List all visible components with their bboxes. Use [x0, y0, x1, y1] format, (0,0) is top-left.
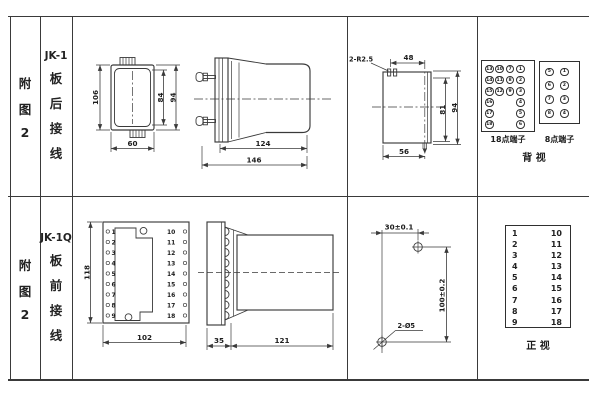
terminal: 3 [516, 87, 525, 96]
figure-char: 附 [19, 73, 32, 92]
terminal: 2 [516, 76, 525, 85]
terminal-no: 2 [112, 239, 116, 246]
dim-case-inner-height: 84 [156, 92, 165, 102]
figure-char: 2 [21, 125, 30, 140]
dim-hole-spacing-h: 30±0.1 [385, 223, 414, 232]
drawing-rear-case-and-side: 106 60 84 94 124 146 [72, 16, 347, 196]
hole-diameter-label: 2-Ø5 [398, 322, 416, 330]
terminal-no: 10 [538, 229, 570, 240]
side-view-front-wiring: 35 121 [198, 222, 340, 350]
terminal-no: 17 [538, 307, 570, 318]
terminal-block-18pt: 13 10 7 1 14 11 8 2 15 12 9 3 16 4 17 5 … [481, 60, 535, 132]
top-hole [412, 241, 451, 254]
drawing-front-panel-and-side: 1 2 3 4 5 6 7 8 9 10 11 12 13 14 15 16 1… [72, 196, 347, 380]
terminal-no: 5 [112, 271, 116, 278]
terminal-no: 7 [506, 296, 538, 307]
dim-plate-depth: 35 [214, 336, 224, 345]
model-label-row1: JK-1 板 后 接 线 [40, 16, 72, 196]
terminal-no: 17 [167, 302, 175, 309]
dim-case-height: 106 [91, 90, 100, 105]
figure-char: 图 [19, 99, 32, 118]
terminal-no: 12 [167, 250, 175, 257]
terminal: 4 [516, 98, 525, 107]
wiring-char: 接 [50, 118, 63, 137]
figure-char: 附 [19, 255, 32, 274]
dim-cutout-inner-height: 81 [438, 105, 447, 115]
model-name: JK-1Q [40, 232, 72, 244]
terminal-no: 2 [506, 240, 538, 251]
terminal-no: 18 [167, 313, 175, 320]
terminal-18pt-label: 18点端子 [479, 134, 537, 145]
terminal-no: 3 [506, 251, 538, 262]
wiring-char: 线 [50, 325, 63, 344]
terminal-no: 13 [167, 260, 175, 267]
dim-case-outer-height: 94 [169, 92, 178, 102]
terminal-no: 18 [538, 318, 570, 329]
terminal-no: 14 [167, 271, 175, 278]
dim-hole-spacing-v: 100±0.2 [437, 279, 446, 313]
terminal-no: 16 [167, 292, 175, 299]
model-name: JK-1 [45, 50, 68, 62]
figure-char: 2 [21, 307, 30, 322]
mount-hole [140, 227, 147, 234]
model-label-row2: JK-1Q 板 前 接 线 [40, 196, 72, 380]
wiring-char: 板 [50, 250, 63, 269]
dim-case-width: 60 [127, 139, 137, 148]
dim-total-length: 146 [246, 156, 261, 165]
terminal: 17 [485, 109, 494, 118]
bottom-connector [130, 130, 145, 138]
panel-left-terminals: 1 2 3 4 5 6 7 8 9 [106, 229, 116, 320]
technical-drawing-page: { "row1": { "figure_no": ["附", "图", "2"]… [0, 0, 600, 400]
terminal-no: 16 [538, 296, 570, 307]
terminal: 10 [495, 65, 504, 74]
front-panel-view: 1 2 3 4 5 6 7 8 9 10 11 12 13 14 15 16 1… [82, 222, 189, 347]
terminal-block-8pt: 5 1 6 2 7 3 8 4 [539, 61, 580, 124]
side-view-rear-wiring: 124 146 [194, 58, 332, 169]
terminal-no: 12 [538, 251, 570, 262]
terminal-no: 4 [506, 262, 538, 273]
dim-cutout-top-width: 48 [403, 53, 413, 62]
terminal-no: 3 [112, 250, 116, 257]
terminal: 15 [485, 87, 494, 96]
terminal-no: 9 [112, 313, 116, 320]
terminal-screw [196, 73, 216, 82]
drawing-drill-pattern: 30±0.1 100±0.2 2-Ø5 [347, 196, 477, 380]
terminal-no: 1 [506, 229, 538, 240]
dim-panel-height: 118 [82, 265, 91, 280]
rear-view-label: 背 视 [499, 149, 569, 164]
figure-label-row2: 附 图 2 [10, 196, 40, 380]
terminal: 1 [516, 65, 525, 74]
terminal: 8 [506, 76, 515, 85]
terminal-no: 9 [506, 318, 538, 329]
terminal: 7 [506, 65, 515, 74]
figure-char: 图 [19, 281, 32, 300]
slot-radius-label: 2-R2.5 [349, 56, 373, 64]
terminal-no: 11 [167, 239, 175, 246]
wiring-char: 线 [50, 143, 63, 162]
terminal: 9 [506, 87, 515, 96]
terminal-no: 15 [538, 284, 570, 295]
terminal-no: 1 [112, 229, 116, 236]
terminal: 6 [545, 81, 554, 90]
terminal: 5 [545, 68, 554, 77]
terminal-8pt-label: 8点端子 [536, 134, 583, 145]
wiring-char: 前 [50, 275, 63, 294]
grid-line [477, 16, 478, 380]
terminal: 7 [545, 95, 554, 104]
panel-right-terminals: 10 11 12 13 14 15 16 17 18 [167, 229, 187, 320]
terminal-bumps [225, 228, 229, 320]
terminal-no: 14 [538, 273, 570, 284]
dim-panel-width: 102 [137, 333, 152, 342]
terminal-no: 7 [112, 292, 116, 299]
terminal-no: 4 [112, 260, 116, 267]
terminal-no: 15 [167, 281, 175, 288]
terminal: 16 [485, 98, 494, 107]
dim-body-length: 124 [255, 139, 270, 148]
terminal: 5 [516, 109, 525, 118]
terminal: 6 [516, 120, 525, 129]
terminal: 4 [560, 109, 569, 118]
terminal-no: 6 [506, 284, 538, 295]
terminal: 1 [560, 68, 569, 77]
terminal: 2 [560, 81, 569, 90]
dim-cutout-outer-height: 94 [450, 103, 459, 113]
terminal: 14 [485, 76, 494, 85]
wiring-char: 板 [50, 68, 63, 87]
wiring-char: 接 [50, 300, 63, 319]
terminal-table-front: 1 10 2 11 3 12 4 13 5 14 6 15 7 16 8 17 … [505, 225, 571, 328]
terminal: 11 [495, 76, 504, 85]
terminal-no: 11 [538, 240, 570, 251]
front-view-label: 正 视 [499, 337, 577, 352]
terminal-no: 10 [167, 229, 175, 236]
terminal-no: 6 [112, 281, 116, 288]
dim-cutout-bottom-width: 56 [399, 147, 409, 156]
terminal-no: 5 [506, 273, 538, 284]
terminal: 18 [485, 120, 494, 129]
wiring-char: 后 [50, 93, 63, 112]
drawing-panel-cutout: 2-R2.5 48 81 94 56 [347, 16, 477, 196]
terminal-screw [196, 117, 216, 126]
terminal: 13 [485, 65, 494, 74]
dim-body-depth: 121 [274, 336, 289, 345]
terminal: 3 [560, 95, 569, 104]
terminal-no: 13 [538, 262, 570, 273]
figure-label-row1: 附 图 2 [10, 16, 40, 196]
top-connector [120, 58, 135, 66]
terminal: 12 [495, 87, 504, 96]
terminal-no: 8 [112, 302, 116, 309]
cutout-outline [372, 60, 440, 159]
rear-case-view: 106 60 84 94 [91, 58, 180, 153]
mount-hole [125, 314, 132, 321]
terminal-no: 8 [506, 307, 538, 318]
terminal: 8 [545, 109, 554, 118]
